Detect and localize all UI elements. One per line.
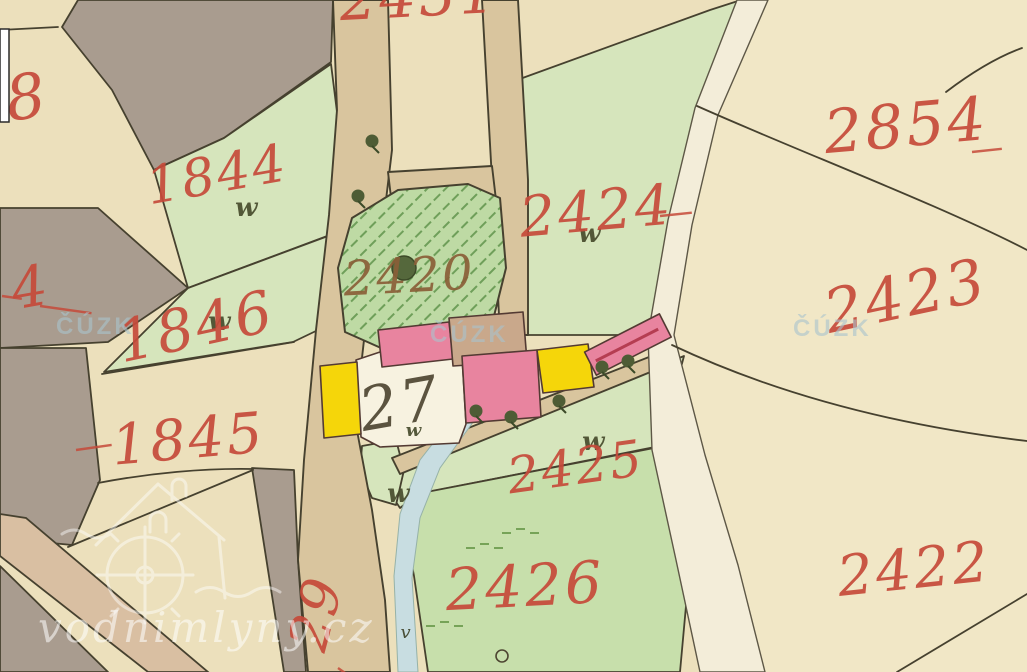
parcel-label-2426: 2426	[443, 548, 607, 624]
cuzk-watermark-text: ČÚZK	[793, 314, 872, 342]
cuzk-watermark-text: ČÚZK	[56, 312, 135, 340]
tree-symbol-icon	[505, 411, 518, 424]
tree-symbol-icon	[596, 361, 609, 374]
cadastral-map-canvas[interactable]: wwwwwwv 24318285418442424242024231846418…	[0, 0, 1027, 672]
parcel-label-27: 27	[353, 363, 447, 446]
tree-symbol-icon	[470, 405, 483, 418]
tree-symbol-icon	[366, 135, 379, 148]
parcel-label-2854: 2854	[820, 84, 991, 168]
v-mark-icon: v	[400, 622, 411, 643]
meadow-symbol-icon: w	[387, 479, 411, 509]
cuzk-watermark-text: ČÚZK	[430, 320, 509, 348]
tree-symbol-icon	[553, 395, 566, 408]
map-viewport: wwwwwwv 24318285418442424242024231846418…	[0, 0, 1027, 672]
parcel-label-2424: 2424	[516, 172, 676, 250]
tree-symbol-icon	[352, 190, 365, 203]
parcel-label-2420: 2420	[341, 245, 477, 308]
building-yellow-west	[320, 362, 361, 438]
site-watermark-text: vodnimlyny.cz	[38, 603, 375, 652]
tree-symbol-icon	[622, 355, 635, 368]
left-edge-panel	[0, 29, 9, 122]
parcel-label-1845: 1845	[109, 400, 268, 478]
